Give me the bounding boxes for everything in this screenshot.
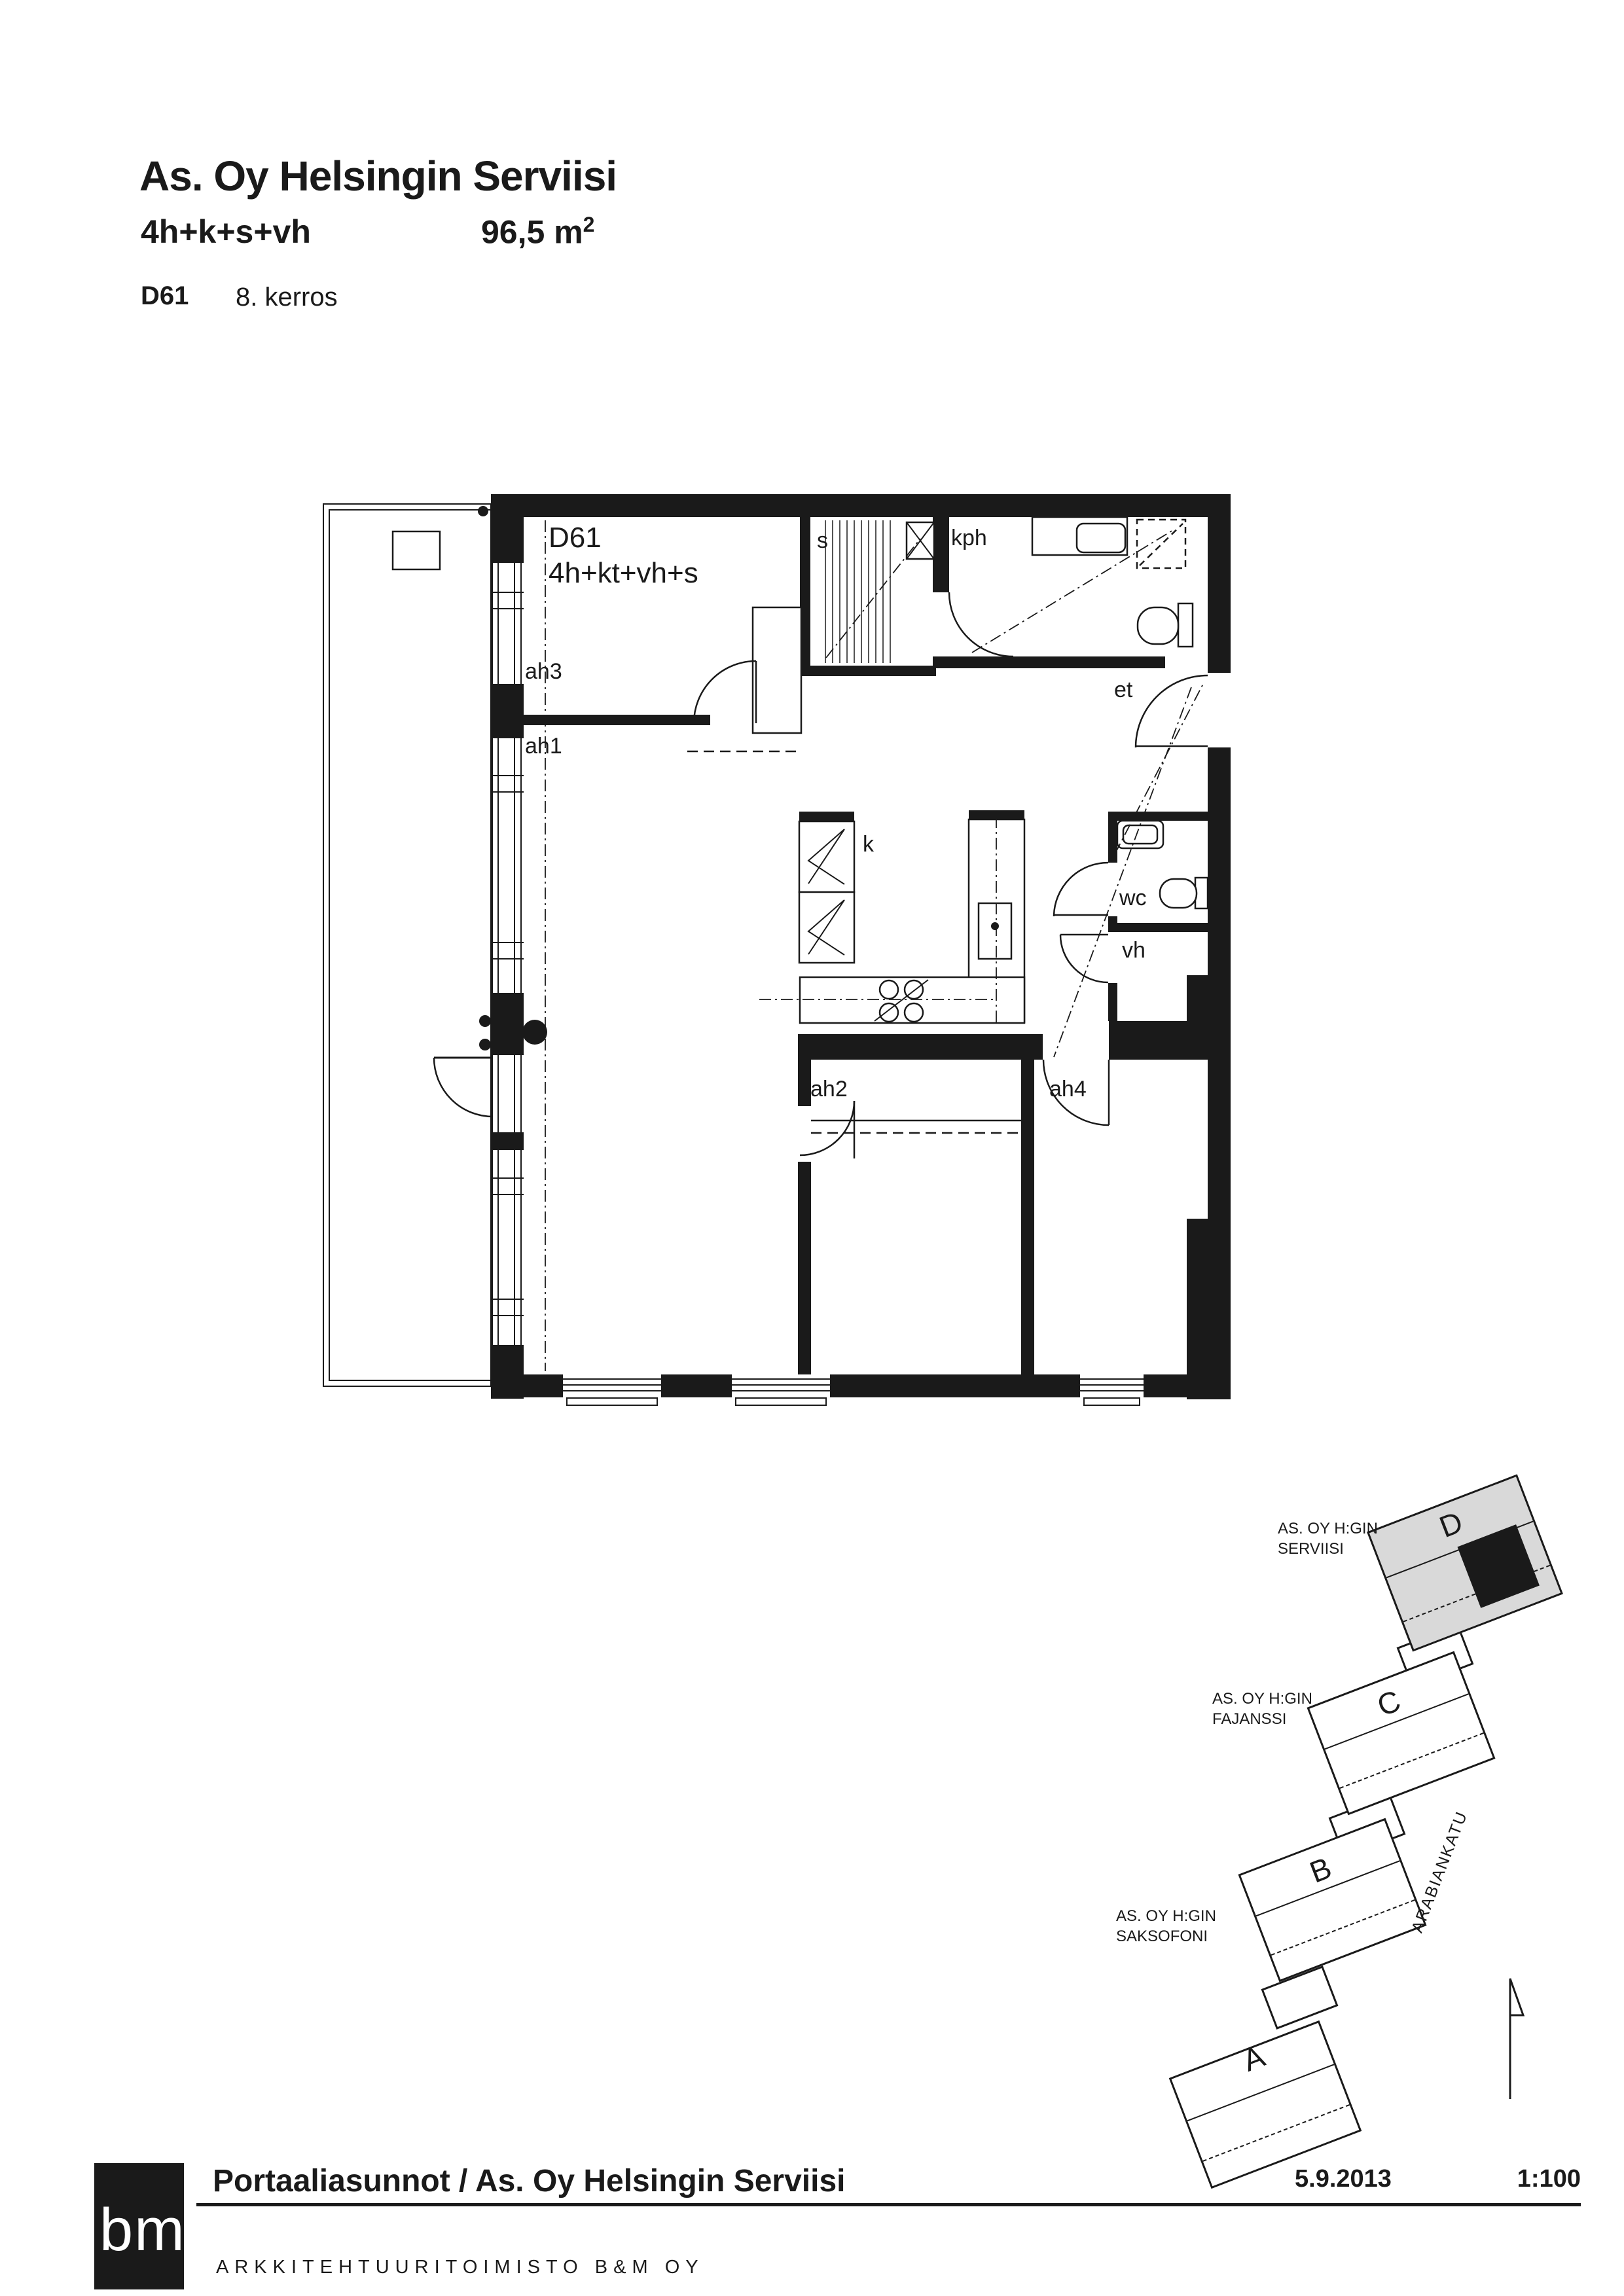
toilet-bowl (1138, 607, 1178, 644)
apartment-area: 96,5 m2 (481, 213, 594, 251)
corner-dot (478, 506, 488, 516)
street-name: ARABIANKATU (1408, 1808, 1472, 1935)
wardrobe (753, 607, 801, 733)
ceiling-label-ah1: ah1 (525, 734, 562, 759)
site-building-b (1238, 1818, 1426, 1982)
footer-scale: 1:100 (1492, 2165, 1581, 2193)
site-plan: D C B A AS. OY H:GIN SERVIISI AS. OY H:G… (1100, 1479, 1623, 2140)
floor-number: 8. kerros (236, 283, 338, 312)
site-label-serviisi: AS. OY H:GIN SERVIISI (1278, 1518, 1378, 1559)
room-label-entry: et (1114, 677, 1132, 703)
sink-basin (1077, 524, 1125, 552)
door-handle-dot (522, 1020, 547, 1045)
unit-id: D61 (141, 281, 189, 311)
footer-date: 5.9.2013 (1295, 2165, 1392, 2193)
apartment-type: 4h+k+s+vh (141, 213, 311, 251)
site-label-serviisi-line1: AS. OY H:GIN (1278, 1520, 1378, 1537)
site-label-fajanssi: AS. OY H:GIN FAJANSSI (1212, 1689, 1312, 1729)
ceiling-label-ah3: ah3 (525, 659, 562, 685)
room-label-wc: wc (1119, 886, 1147, 911)
footer-office-name: ARKKITEHTUURITOIMISTO B&M OY (216, 2257, 704, 2278)
footer-project-title: Portaaliasunnot / As. Oy Helsingin Servi… (213, 2163, 846, 2199)
kitchen-sink (979, 903, 1011, 959)
bathroom-fixtures (1032, 517, 1193, 647)
site-label-saksofoni: AS. OY H:GIN SAKSOFONI (1116, 1906, 1216, 1946)
site-building-c (1307, 1651, 1495, 1816)
site-label-serviisi-line2: SERVIISI (1278, 1540, 1344, 1558)
room-label-kitchen: k (863, 832, 874, 857)
site-label-fajanssi-line2: FAJANSSI (1212, 1710, 1286, 1728)
sauna-area (821, 520, 934, 663)
balcony-door-arc (434, 1058, 493, 1117)
area-superscript: 2 (583, 213, 595, 236)
site-building-a (1169, 2020, 1362, 2189)
site-label-saksofoni-line1: AS. OY H:GIN (1116, 1907, 1216, 1925)
room-label-closet: vh (1122, 938, 1146, 963)
bm-logo: bm (94, 2163, 184, 2289)
site-connector-ba (1261, 1965, 1339, 2030)
bm-logo-text: bm (99, 2196, 186, 2265)
front-door-opening (1208, 673, 1231, 747)
ceiling-label-ah4: ah4 (1049, 1077, 1087, 1102)
footer-divider (196, 2203, 1581, 2206)
plan-unit-type-label: 4h+kt+vh+s (549, 557, 698, 590)
room-label-sauna: s (817, 528, 828, 554)
balcony (323, 504, 493, 1386)
north-arrow-icon (1492, 1973, 1545, 2104)
shower (1137, 520, 1185, 568)
page-title: As. Oy Helsingin Serviisi (139, 152, 617, 200)
window-wall (491, 494, 547, 1399)
kitchen-fixtures (799, 819, 1024, 1023)
plan-unit-label: D61 (549, 522, 602, 554)
area-value: 96,5 m (481, 214, 583, 251)
site-label-fajanssi-line1: AS. OY H:GIN (1212, 1690, 1312, 1708)
floorplan-drawing (321, 494, 1231, 1430)
site-label-saksofoni-line2: SAKSOFONI (1116, 1928, 1208, 1945)
toilet-tank (1178, 603, 1193, 647)
site-building-d (1367, 1474, 1563, 1651)
floor-plan: D61 4h+kt+vh+s s kph et k wc vh ah3 ah1 … (321, 494, 1231, 1430)
room-label-bathroom: kph (951, 526, 987, 551)
ceiling-label-ah2: ah2 (810, 1077, 848, 1102)
